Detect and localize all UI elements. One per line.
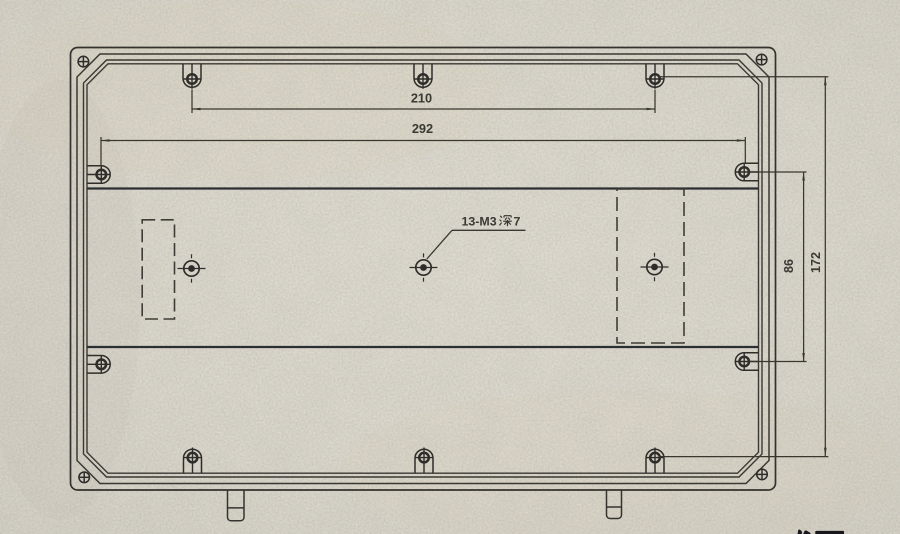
svg-text:86: 86 bbox=[782, 259, 796, 273]
svg-text:13-M3: 13-M3 bbox=[462, 215, 497, 229]
svg-text:7: 7 bbox=[514, 215, 521, 229]
svg-text:292: 292 bbox=[412, 121, 433, 136]
svg-text:210: 210 bbox=[411, 91, 432, 106]
svg-text:172: 172 bbox=[809, 252, 823, 273]
